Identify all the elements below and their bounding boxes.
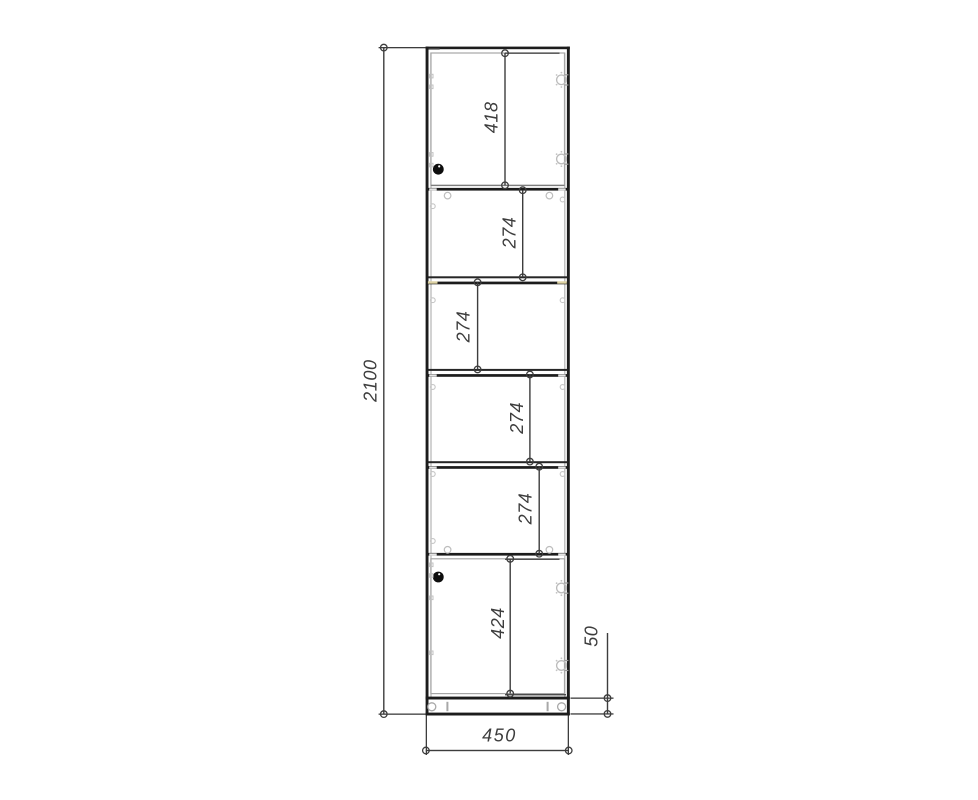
svg-text:450: 450	[482, 726, 517, 746]
svg-text:418: 418	[481, 101, 501, 133]
svg-text:50: 50	[581, 626, 601, 647]
svg-text:274: 274	[499, 217, 519, 250]
svg-text:424: 424	[488, 607, 508, 639]
svg-text:274: 274	[454, 311, 474, 344]
svg-text:274: 274	[507, 402, 527, 435]
svg-text:2100: 2100	[360, 359, 380, 402]
svg-text:274: 274	[516, 493, 536, 526]
